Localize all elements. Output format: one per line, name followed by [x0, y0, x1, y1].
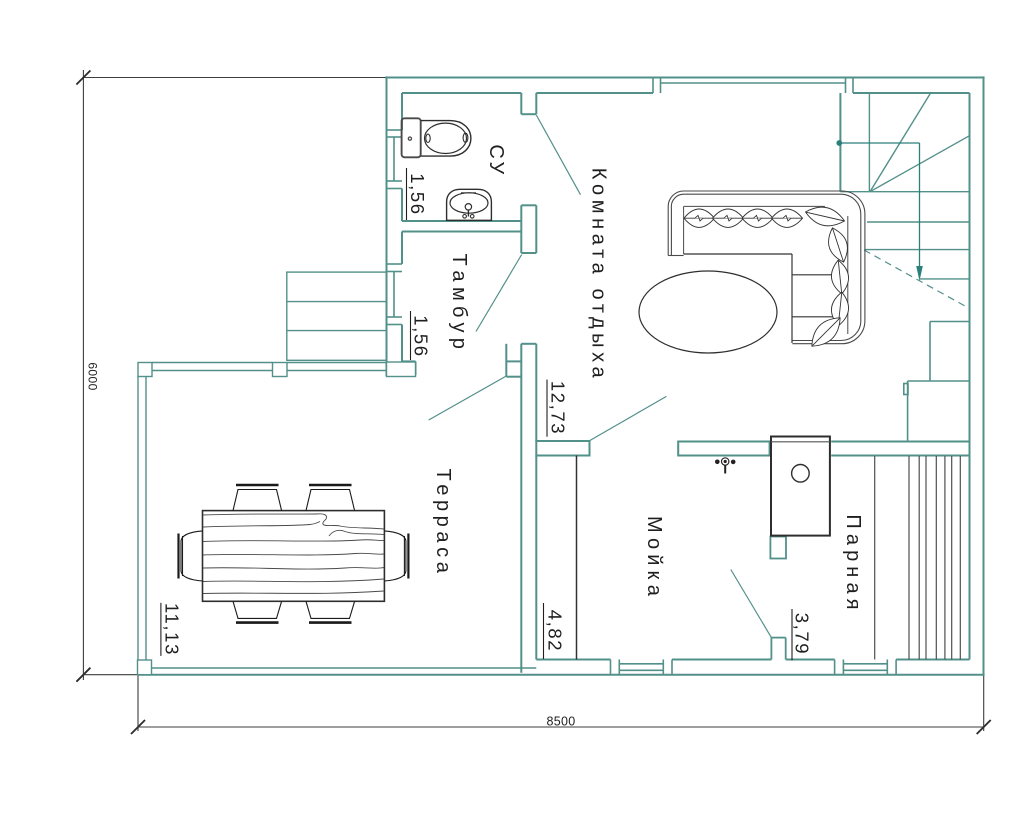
svg-text:4,82: 4,82 [545, 610, 566, 652]
svg-text:Парная: Парная [842, 514, 864, 614]
svg-text:1,56: 1,56 [407, 173, 428, 215]
svg-text:Комната отдыха: Комната отдыха [588, 168, 610, 382]
svg-text:СУ: СУ [485, 144, 507, 177]
svg-text:8500: 8500 [546, 715, 575, 729]
svg-text:3,79: 3,79 [792, 613, 813, 655]
svg-text:Терраса: Терраса [432, 469, 454, 578]
svg-text:6000: 6000 [86, 362, 100, 390]
svg-text:Мойка: Мойка [643, 516, 665, 601]
svg-text:12,73: 12,73 [548, 381, 569, 435]
svg-text:11,13: 11,13 [162, 603, 183, 656]
svg-text:Тамбур: Тамбур [448, 254, 470, 355]
svg-text:1,56: 1,56 [411, 315, 432, 357]
